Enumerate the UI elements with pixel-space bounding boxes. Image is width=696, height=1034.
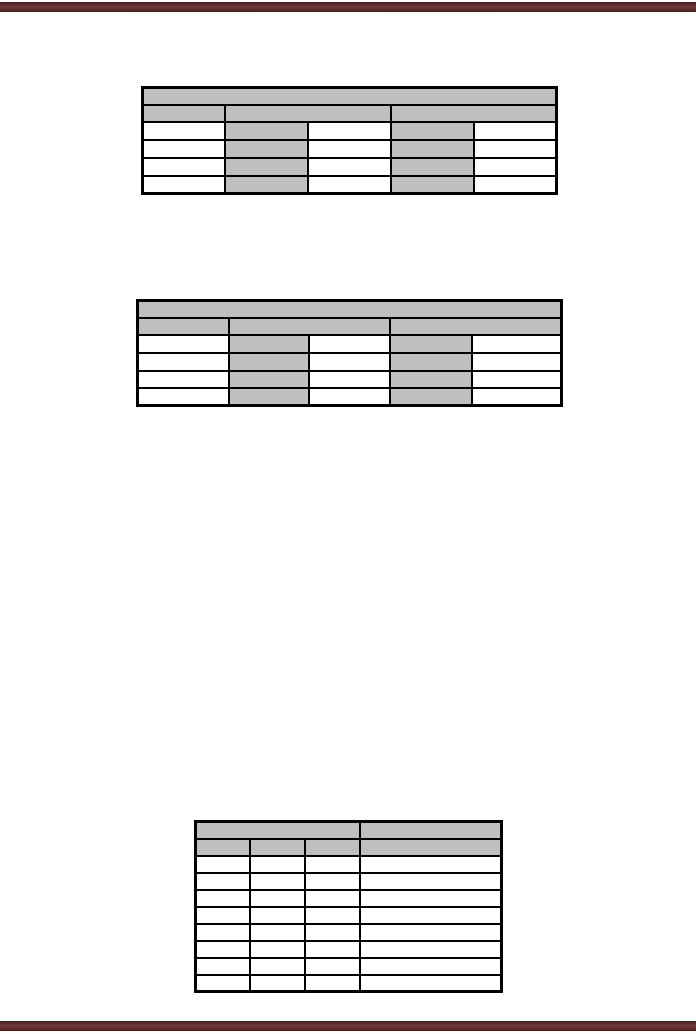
table-row	[196, 924, 502, 941]
table-row	[196, 975, 502, 992]
table-cell-plain	[196, 975, 250, 992]
table-cell-plain	[143, 158, 225, 176]
table-cell-shaded	[196, 822, 360, 839]
table-cell-plain	[360, 907, 502, 924]
table-row	[196, 907, 502, 924]
bottom-accent-bar	[0, 1021, 696, 1031]
table-cell-plain	[308, 176, 391, 194]
empty-table-3	[194, 820, 503, 993]
table-cell-plain	[472, 371, 562, 388]
table-cell-plain	[143, 122, 225, 140]
table-cell-shaded	[229, 353, 309, 371]
table-row	[143, 158, 557, 176]
table-cell-plain	[474, 176, 557, 194]
table-cell-plain	[472, 353, 562, 371]
table-cell-plain	[138, 388, 229, 406]
table-cell-plain	[360, 873, 502, 890]
table-row	[143, 176, 557, 194]
table-row	[196, 873, 502, 890]
table-cell-plain	[305, 890, 360, 907]
table-cell-shaded	[225, 122, 308, 140]
table-cell-plain	[305, 856, 360, 873]
table-cell-plain	[143, 140, 225, 158]
table-cell-plain	[308, 140, 391, 158]
table-cell-plain	[360, 975, 502, 992]
table-cell-shaded	[225, 105, 391, 122]
table-cell-plain	[250, 958, 305, 975]
table-cell-plain	[472, 388, 562, 406]
table-cell-plain	[138, 353, 229, 371]
table-cell-shaded	[390, 353, 472, 371]
table-row	[138, 371, 562, 388]
table-cell-plain	[360, 924, 502, 941]
top-accent-bar	[0, 2, 696, 12]
table-cell-shaded	[390, 388, 472, 406]
table-cell-shaded	[305, 839, 360, 856]
table-cell-plain	[138, 371, 229, 388]
table-row	[143, 105, 557, 122]
table-cell-plain	[308, 158, 391, 176]
table-cell-plain	[138, 335, 229, 353]
table-row	[143, 122, 557, 140]
table-row	[196, 856, 502, 873]
table-cell-shaded	[138, 301, 562, 318]
table-cell-plain	[308, 122, 391, 140]
table-cell-plain	[360, 890, 502, 907]
table-cell-plain	[474, 158, 557, 176]
table-row	[196, 839, 502, 856]
table-cell-plain	[196, 873, 250, 890]
table-cell-shaded	[229, 371, 309, 388]
empty-table-2	[136, 299, 563, 407]
empty-table-1	[141, 86, 558, 195]
table-row	[138, 318, 562, 335]
table-cell-plain	[305, 941, 360, 958]
table-cell-plain	[250, 924, 305, 941]
table-cell-shaded	[391, 122, 474, 140]
table-cell-plain	[250, 873, 305, 890]
table-cell-shaded	[360, 839, 502, 856]
table-cell-shaded	[225, 158, 308, 176]
table-cell-plain	[309, 388, 390, 406]
table-cell-plain	[309, 371, 390, 388]
table-cell-plain	[305, 958, 360, 975]
table-cell-shaded	[390, 371, 472, 388]
table-cell-plain	[196, 924, 250, 941]
table-cell-shaded	[391, 158, 474, 176]
document-page	[0, 0, 696, 1034]
table-cell-plain	[196, 890, 250, 907]
table-cell-shaded	[360, 822, 502, 839]
table-cell-shaded	[138, 318, 229, 335]
table-cell-shaded	[225, 140, 308, 158]
table-cell-plain	[196, 856, 250, 873]
table-cell-shaded	[229, 335, 309, 353]
table-cell-plain	[360, 941, 502, 958]
table-cell-plain	[360, 856, 502, 873]
table-row	[196, 958, 502, 975]
table-cell-plain	[196, 907, 250, 924]
table-cell-plain	[309, 353, 390, 371]
table-cell-shaded	[225, 176, 308, 194]
table-row	[196, 822, 502, 839]
table-cell-plain	[305, 873, 360, 890]
table-row	[196, 941, 502, 958]
table-cell-plain	[305, 975, 360, 992]
table-row	[138, 353, 562, 371]
table-cell-plain	[305, 924, 360, 941]
table-row	[138, 388, 562, 406]
table-cell-plain	[143, 176, 225, 194]
table-row	[138, 301, 562, 318]
table-row	[143, 140, 557, 158]
table-cell-shaded	[250, 839, 305, 856]
table-cell-plain	[250, 975, 305, 992]
table-cell-shaded	[143, 105, 225, 122]
table-cell-plain	[305, 907, 360, 924]
table-cell-shaded	[390, 318, 562, 335]
table-row	[138, 335, 562, 353]
table-cell-plain	[250, 890, 305, 907]
table-cell-shaded	[229, 318, 390, 335]
table-cell-shaded	[391, 105, 557, 122]
table-cell-shaded	[391, 176, 474, 194]
table-cell-plain	[472, 335, 562, 353]
table-cell-plain	[250, 907, 305, 924]
table-cell-plain	[309, 335, 390, 353]
table-cell-shaded	[391, 140, 474, 158]
table-cell-plain	[474, 122, 557, 140]
table-cell-plain	[250, 856, 305, 873]
table-row	[143, 88, 557, 105]
table-cell-plain	[196, 941, 250, 958]
table-row	[196, 890, 502, 907]
table-cell-plain	[360, 958, 502, 975]
table-cell-shaded	[143, 88, 557, 105]
table-cell-shaded	[229, 388, 309, 406]
table-cell-plain	[474, 140, 557, 158]
table-cell-shaded	[196, 839, 250, 856]
table-cell-plain	[196, 958, 250, 975]
table-cell-plain	[250, 941, 305, 958]
table-cell-shaded	[390, 335, 472, 353]
